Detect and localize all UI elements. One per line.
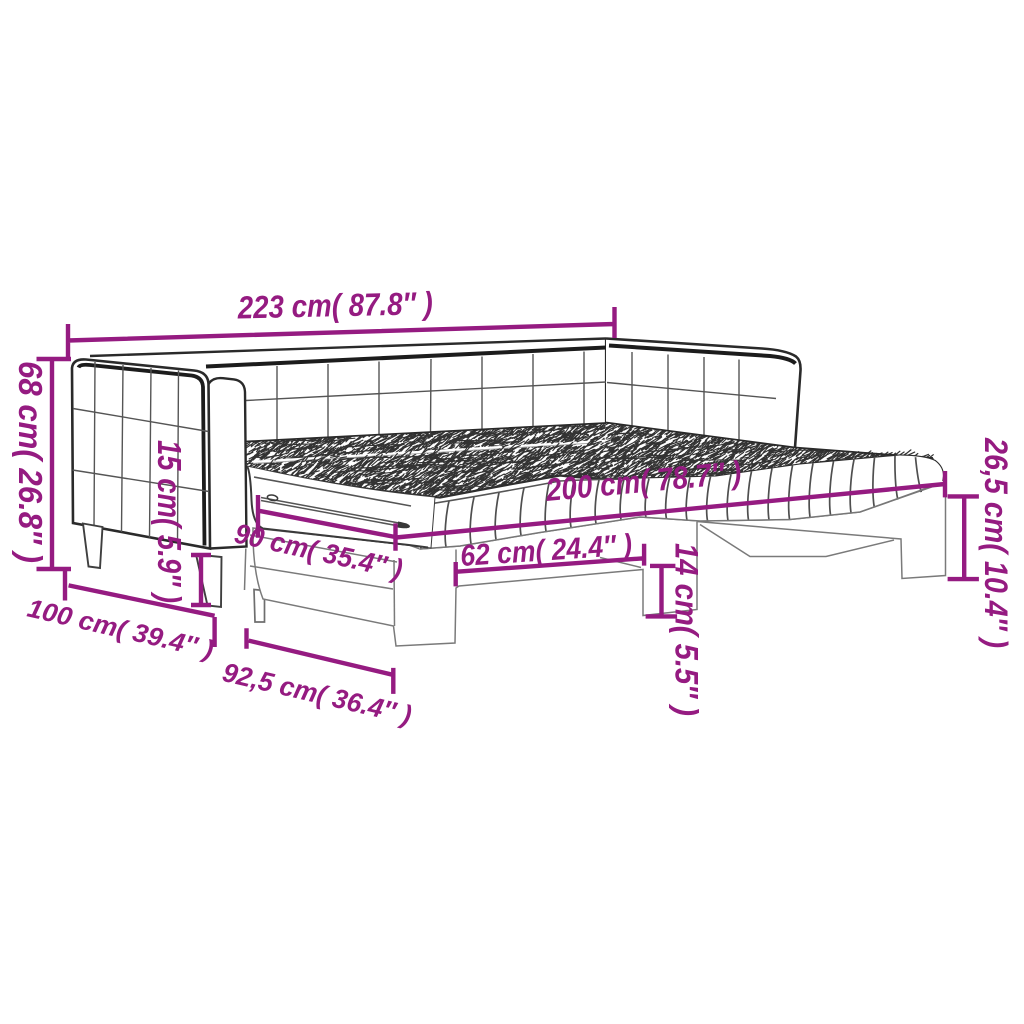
svg-text:223 cm( 87.8″ ): 223 cm( 87.8″ ) bbox=[236, 285, 433, 325]
svg-text:15 cm( 5.9″ ): 15 cm( 5.9″ ) bbox=[151, 440, 188, 603]
svg-text:68 cm( 26.8″ ): 68 cm( 26.8″ ) bbox=[12, 361, 49, 563]
svg-text:14 cm( 5.5″ ): 14 cm( 5.5″ ) bbox=[669, 543, 705, 716]
svg-text:26,5 cm( 10.4″ ): 26,5 cm( 10.4″ ) bbox=[978, 437, 1014, 648]
